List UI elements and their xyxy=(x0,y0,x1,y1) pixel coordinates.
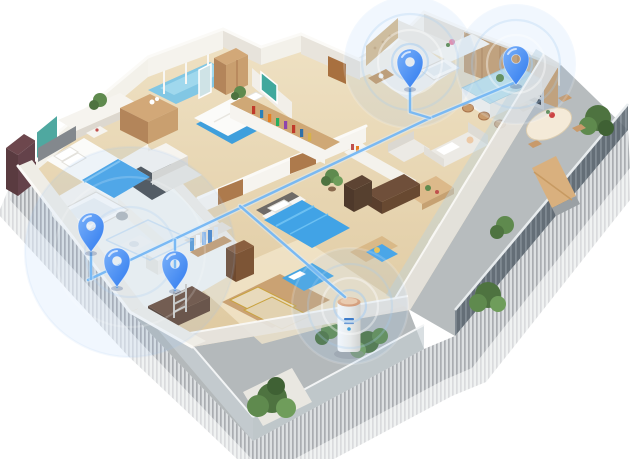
mirror xyxy=(199,64,211,98)
pillow-peach xyxy=(467,137,474,144)
floor-plan-illustration xyxy=(0,0,630,459)
signal-ripple xyxy=(25,147,235,357)
orchid xyxy=(150,100,155,105)
pillow-yellow xyxy=(374,247,380,253)
illustration-stage xyxy=(0,0,630,459)
